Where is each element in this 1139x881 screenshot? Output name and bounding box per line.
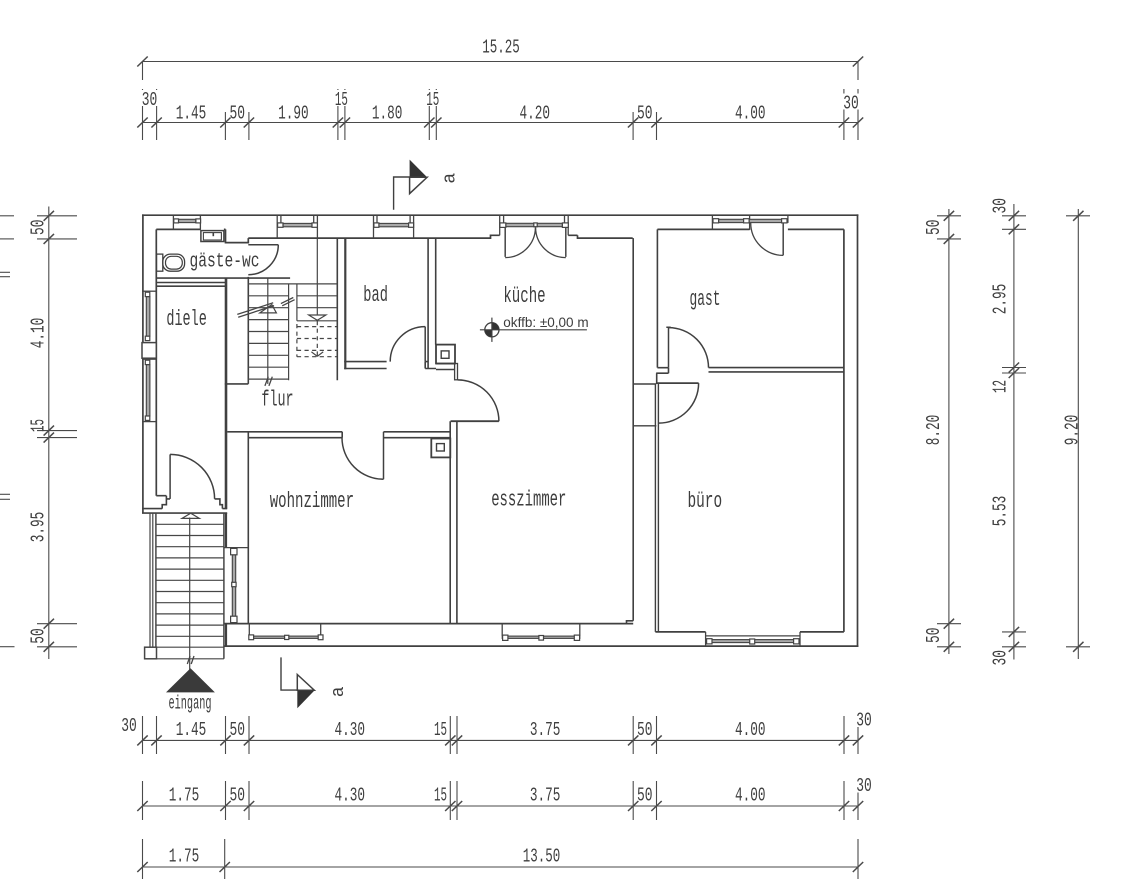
svg-text:gast: gast bbox=[690, 287, 721, 312]
svg-text:bad: bad bbox=[363, 283, 388, 308]
svg-text:15: 15 bbox=[27, 419, 49, 432]
svg-text:50: 50 bbox=[637, 719, 653, 741]
svg-text:büro: büro bbox=[688, 489, 723, 514]
svg-text:30: 30 bbox=[856, 775, 872, 797]
svg-text:15: 15 bbox=[426, 89, 439, 111]
svg-text:15: 15 bbox=[335, 89, 348, 111]
svg-text:12: 12 bbox=[990, 380, 1012, 393]
svg-text:3.75: 3.75 bbox=[530, 719, 561, 741]
svg-text:30: 30 bbox=[843, 93, 859, 115]
svg-text:30: 30 bbox=[121, 715, 137, 737]
svg-text:50: 50 bbox=[923, 220, 945, 236]
svg-text:gäste-wc: gäste-wc bbox=[190, 251, 260, 274]
svg-text:8.20: 8.20 bbox=[923, 415, 945, 446]
svg-text:15: 15 bbox=[434, 784, 447, 806]
svg-text:50: 50 bbox=[923, 627, 945, 643]
svg-text:4.20: 4.20 bbox=[519, 103, 550, 125]
svg-text:1.45: 1.45 bbox=[176, 719, 207, 741]
svg-text:1.80: 1.80 bbox=[372, 103, 403, 125]
svg-text:4.30: 4.30 bbox=[334, 785, 365, 807]
svg-text:esszimmer: esszimmer bbox=[491, 487, 566, 512]
svg-text:50: 50 bbox=[637, 785, 653, 807]
svg-text:4.10: 4.10 bbox=[27, 318, 49, 349]
svg-text:30: 30 bbox=[990, 198, 1012, 214]
svg-text:15: 15 bbox=[434, 719, 447, 741]
svg-text:eingang: eingang bbox=[169, 692, 212, 714]
svg-text:diele: diele bbox=[166, 307, 207, 332]
svg-text:3.95: 3.95 bbox=[27, 512, 49, 543]
svg-text:1.90: 1.90 bbox=[278, 103, 309, 125]
svg-text:5.53: 5.53 bbox=[990, 496, 1012, 527]
svg-text:küche: küche bbox=[503, 284, 545, 309]
svg-text:50: 50 bbox=[229, 785, 245, 807]
svg-text:4.00: 4.00 bbox=[735, 719, 766, 741]
svg-text:4.00: 4.00 bbox=[735, 103, 766, 125]
svg-text:9.20: 9.20 bbox=[1062, 415, 1084, 446]
svg-text:wohnzimmer: wohnzimmer bbox=[270, 489, 354, 514]
svg-text:2.95: 2.95 bbox=[990, 284, 1012, 315]
svg-text:30: 30 bbox=[142, 89, 158, 111]
svg-text:4.30: 4.30 bbox=[334, 719, 365, 741]
svg-text:50: 50 bbox=[229, 719, 245, 741]
svg-text:50: 50 bbox=[229, 103, 245, 125]
svg-text:50: 50 bbox=[27, 628, 49, 644]
svg-text:a: a bbox=[441, 173, 461, 184]
svg-text:1.45: 1.45 bbox=[176, 103, 207, 125]
svg-text:30: 30 bbox=[856, 710, 872, 732]
svg-text:1.75: 1.75 bbox=[169, 845, 200, 867]
svg-text:50: 50 bbox=[637, 103, 653, 125]
svg-text:a: a bbox=[329, 686, 349, 697]
svg-text:50: 50 bbox=[27, 220, 49, 236]
svg-text:15.25: 15.25 bbox=[482, 37, 520, 59]
svg-text:3.75: 3.75 bbox=[530, 785, 561, 807]
svg-text:flur: flur bbox=[261, 388, 293, 413]
svg-text:okffb: ±0,00 m: okffb: ±0,00 m bbox=[503, 314, 588, 330]
svg-text:1.75: 1.75 bbox=[169, 785, 200, 807]
svg-text:13.50: 13.50 bbox=[523, 845, 561, 867]
svg-text:4.00: 4.00 bbox=[735, 785, 766, 807]
svg-text:30: 30 bbox=[990, 650, 1012, 666]
